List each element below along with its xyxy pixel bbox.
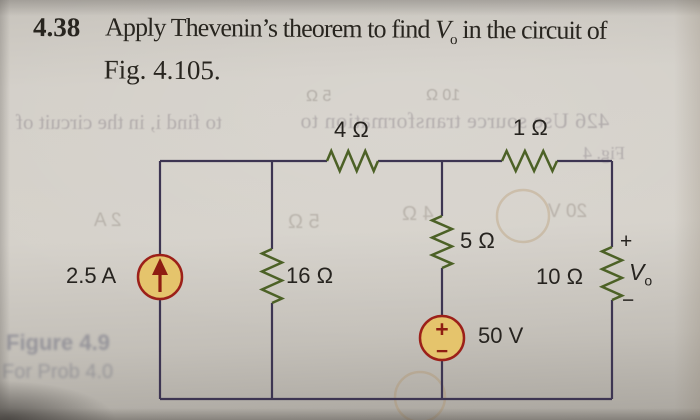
label-resistor-4ohm: 4 Ω [334,117,369,143]
label-resistor-16ohm: 16 Ω [286,263,333,289]
label-current-source: 2.5 A [66,263,116,289]
resistor-5ohm-icon [432,216,452,268]
vo-subscript: o [644,273,652,289]
voltage-source-icon: + − [420,316,464,363]
textbook-photo-page: to find i, in the circuit of 426 Use sou… [0,0,700,420]
problem-number: 4.38 [33,12,80,43]
voltage-source-minus: − [436,340,448,363]
ghost-circle-bottom [395,372,445,420]
vo-symbol-title: V [435,15,450,44]
statement-prefix: Apply Thevenin’s theorem to find [105,12,435,43]
resistor-16ohm-icon [262,249,282,303]
ghost-source-circles [395,190,549,420]
label-vo: Vo [629,259,652,286]
problem-text-line1: Apply Thevenin’s theorem to find Vo in t… [105,12,607,46]
label-voltage-source: 50 V [478,323,523,349]
label-vo-minus: − [622,289,634,313]
label-resistor-10ohm: 10 Ω [536,264,583,290]
vo-symbol: V [629,259,644,285]
ghost-circle-20v [497,190,549,242]
label-resistor-5ohm: 5 Ω [460,228,495,254]
resistor-10ohm-icon [602,247,622,300]
resistor-4ohm-icon [327,151,378,171]
label-vo-plus: + [620,230,632,254]
label-resistor-1ohm: 1 Ω [513,115,548,141]
resistor-1ohm-icon [502,151,557,171]
voltage-source-plus: + [435,316,448,342]
problem-statement: 4.38 Apply Thevenin’s theorem to find Vo… [0,0,700,105]
statement-suffix: in the circuit of [457,15,607,45]
figure-reference: Fig. 4.105. [104,54,221,86]
current-source-icon [138,255,182,299]
